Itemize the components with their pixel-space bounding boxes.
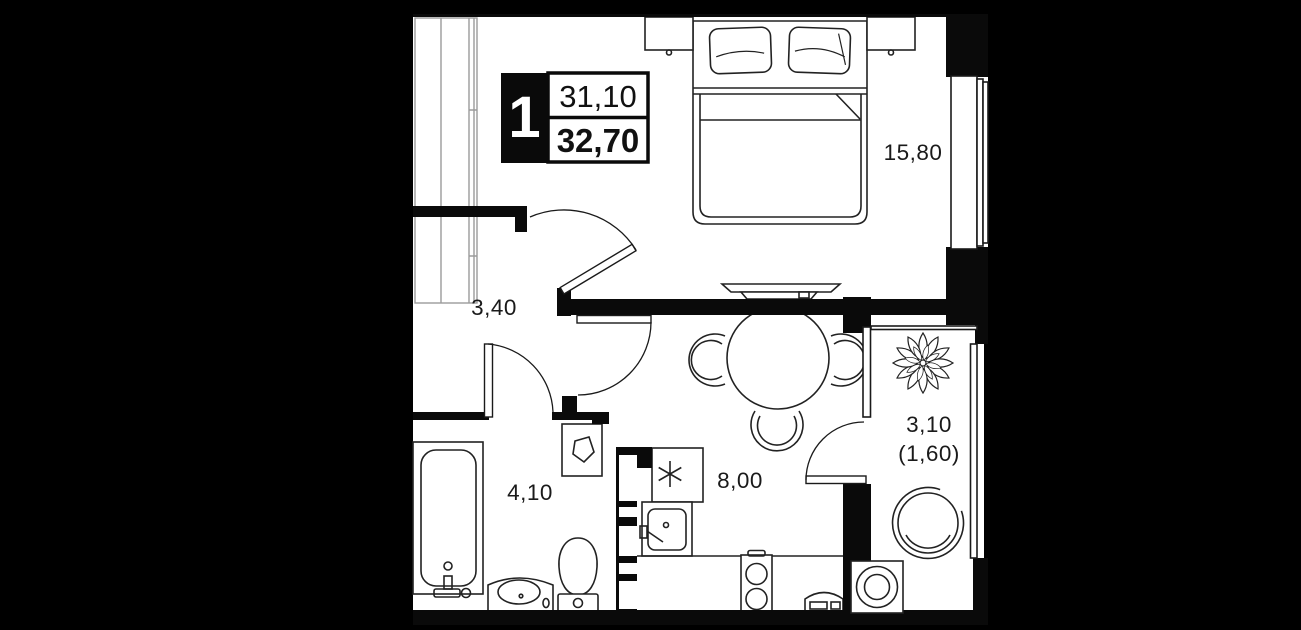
pillow-icon — [788, 27, 851, 74]
floor-plan: 15,80 3,40 4,10 8,00 3,10 (1,60) 1 31,10… — [0, 0, 1301, 630]
bedroom-area-label: 15,80 — [884, 140, 943, 165]
nightstand-icon — [645, 17, 693, 55]
bathtub-icon — [413, 442, 483, 598]
nightstand-icon — [867, 17, 915, 55]
bathroom-sink-icon — [488, 578, 553, 611]
kitchen-appliance-icon — [805, 593, 843, 613]
balcony-reduced-area-label: (1,60) — [898, 441, 960, 466]
kitchen-area-label: 8,00 — [717, 468, 763, 493]
pillow-icon — [709, 27, 772, 74]
double-bed-icon — [693, 21, 867, 224]
rooms-count: 1 — [508, 85, 540, 150]
toilet-icon — [558, 538, 598, 612]
kitchen-sink-icon — [640, 502, 692, 556]
stove-icon — [741, 551, 772, 613]
area-value-top: 31,10 — [559, 79, 637, 114]
balcony-area-label: 3,10 — [906, 412, 952, 437]
dining-table-icon — [727, 307, 829, 409]
bathroom-area-label: 4,10 — [507, 480, 553, 505]
washing-machine-icon — [851, 561, 903, 613]
water-heater-icon — [562, 424, 602, 476]
unit-info-card: 1 31,10 32,70 — [501, 73, 648, 163]
bedroom-window — [951, 76, 988, 249]
hallway-area-label: 3,40 — [471, 295, 517, 320]
area-value-bottom: 32,70 — [557, 122, 640, 159]
duct-shaft — [619, 455, 637, 609]
fridge-icon — [652, 448, 703, 502]
